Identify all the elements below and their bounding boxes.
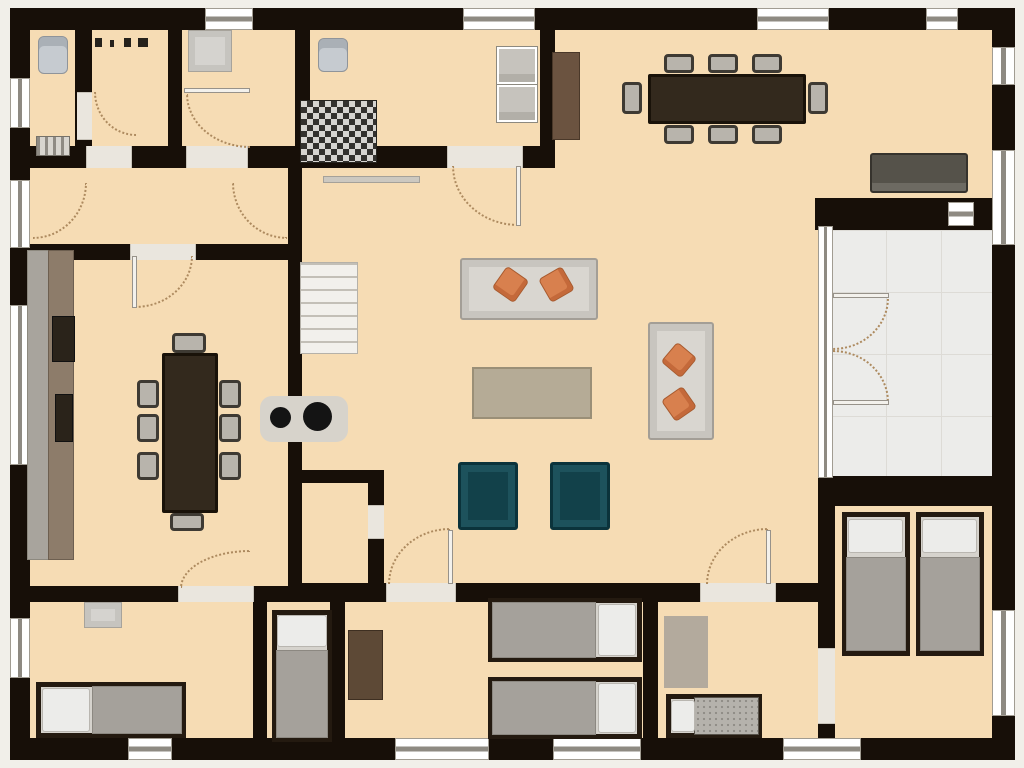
laundry-sink <box>318 38 348 72</box>
door-leaf <box>516 166 521 226</box>
wall-bedroom2-right <box>330 602 345 738</box>
cooktop <box>52 316 75 362</box>
wall-terrace-bottom <box>818 476 1015 506</box>
bed-pillow <box>277 615 327 647</box>
window <box>395 738 489 760</box>
door-leaf <box>833 293 889 298</box>
counter-sink <box>55 394 73 442</box>
bed-blanket <box>276 650 328 738</box>
bed-blanket <box>492 602 596 658</box>
washer <box>497 47 537 84</box>
coat-hook <box>124 38 131 47</box>
door-opening <box>386 583 456 602</box>
coffee-table <box>472 367 592 419</box>
door-opening <box>818 648 835 724</box>
stove-burner <box>270 407 291 428</box>
dining-chair <box>172 333 206 353</box>
wall-bedroom3-right <box>643 602 658 738</box>
dining-table <box>648 74 806 124</box>
window <box>553 738 641 760</box>
wall-shelf <box>323 176 420 183</box>
dining-chair <box>219 380 241 408</box>
door-leaf <box>833 400 889 405</box>
open-door-leaf <box>77 92 92 140</box>
bed-blanket <box>920 557 980 651</box>
staircase <box>300 262 358 354</box>
sideboard <box>870 153 968 193</box>
coat-hook <box>95 38 102 47</box>
dining-chair <box>708 54 738 73</box>
dining-chair <box>219 452 241 480</box>
door-opening <box>86 146 132 168</box>
bed-pillow <box>922 519 977 553</box>
dining-chair <box>137 452 159 480</box>
coat-hook <box>110 40 114 47</box>
nightstand <box>84 602 122 628</box>
dining-chair <box>137 380 159 408</box>
armchair <box>458 462 518 530</box>
dining-chair <box>708 125 738 144</box>
bed-pillow <box>848 519 903 553</box>
wall-diningroom-bottom <box>10 586 302 602</box>
window <box>205 8 253 30</box>
door-leaf <box>766 530 771 584</box>
window <box>10 618 30 678</box>
dining-chair <box>137 414 159 442</box>
door-opening <box>368 505 384 539</box>
bed-pillow <box>598 604 636 656</box>
dining-chair <box>752 125 782 144</box>
bed-blanket <box>846 557 906 651</box>
wall-bedroom1-right <box>253 602 267 738</box>
armchair <box>550 462 610 530</box>
bed-pillow <box>598 683 636 733</box>
crib-blanket <box>694 697 759 735</box>
window <box>992 610 1015 716</box>
bed-blanket <box>92 686 182 734</box>
storage-cabinet <box>188 30 232 72</box>
door-opening <box>186 146 248 168</box>
dryer <box>497 85 537 122</box>
wall-terrace-top <box>815 198 1015 230</box>
floor-plan <box>0 0 1024 768</box>
terrace-wall-vent <box>948 202 974 226</box>
kitchen-counter <box>552 52 580 140</box>
wall-dining-great-divider <box>288 166 302 588</box>
dining-chair <box>664 125 694 144</box>
crib-pillow <box>671 700 695 732</box>
rug <box>664 616 708 688</box>
door-leaf <box>184 88 250 93</box>
door-opening <box>700 583 776 602</box>
dining-chair <box>664 54 694 73</box>
window <box>926 8 958 30</box>
door-leaf <box>132 256 137 308</box>
dining-chair <box>622 82 642 114</box>
appliance-unit <box>300 100 377 163</box>
bed-pillow <box>42 688 90 732</box>
window <box>463 8 535 30</box>
dining-chair <box>808 82 828 114</box>
dining-chair <box>170 513 204 531</box>
window <box>10 78 30 128</box>
window <box>783 738 861 760</box>
stove-burner <box>303 402 332 431</box>
kitchen-counter <box>27 250 50 560</box>
wall-hall-right <box>168 27 182 146</box>
door-opening <box>447 146 523 168</box>
radiator <box>36 136 70 156</box>
coat-hook <box>138 38 148 47</box>
dresser <box>348 630 383 700</box>
dining-chair <box>752 54 782 73</box>
dining-table <box>162 353 218 513</box>
bed-blanket <box>492 681 596 735</box>
sofa <box>460 258 598 320</box>
dining-chair <box>219 414 241 442</box>
window <box>992 150 1015 245</box>
door-leaf <box>448 530 453 584</box>
terrace-door-frame <box>818 226 833 478</box>
toilet <box>38 36 68 74</box>
window <box>757 8 829 30</box>
window <box>992 47 1015 85</box>
sofa <box>648 322 714 440</box>
door-opening <box>178 586 254 602</box>
window <box>10 180 30 248</box>
window <box>128 738 172 760</box>
